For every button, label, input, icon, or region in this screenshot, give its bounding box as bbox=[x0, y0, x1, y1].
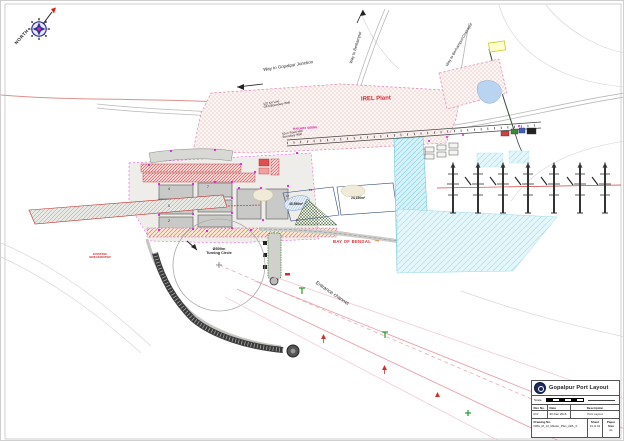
description-value: Port Layout bbox=[571, 411, 619, 418]
scale-label: Scale bbox=[534, 398, 542, 402]
parcel-area-label: 24,150m² bbox=[351, 197, 365, 200]
beacon-icon bbox=[299, 288, 471, 416]
rev-no-value: R-0 bbox=[532, 411, 548, 418]
parcel-area-label: 45,556m² bbox=[289, 203, 303, 206]
breakwater-label-2: BREAKWATER bbox=[85, 256, 115, 259]
paper-size-label: Paper Size bbox=[605, 420, 618, 428]
description-header: Description bbox=[571, 405, 619, 410]
substation-box bbox=[489, 41, 506, 52]
turning-circle-text: Turning Circle bbox=[194, 251, 244, 255]
port-logo bbox=[534, 382, 546, 394]
block-no: 2 bbox=[168, 220, 170, 224]
rev-no-header: Rev No. bbox=[532, 405, 548, 410]
scale-ticks bbox=[588, 399, 615, 401]
berth-loading-cluster bbox=[501, 128, 536, 136]
date-header: Date bbox=[548, 405, 571, 410]
block-no: 5 bbox=[168, 205, 170, 209]
parcel-patch bbox=[253, 189, 273, 201]
block-no: 4 bbox=[168, 188, 170, 192]
block-no: 7 bbox=[207, 186, 209, 190]
bay-of-bengal-label: BAY OF BENGAL bbox=[333, 240, 371, 244]
navigation-marks bbox=[299, 288, 471, 416]
parcel-no: 14 bbox=[309, 189, 312, 192]
scale-bar bbox=[546, 398, 584, 402]
drawing-no-value: DRG_M_13_Master_Plan_GPL_0 bbox=[534, 424, 578, 428]
existing-breakwater-label: EXISTING BREAKWATER bbox=[85, 253, 115, 259]
paper-size-value: A1 bbox=[609, 428, 613, 432]
port-layout-drawing: NORTH Way to Gopalpur Junction Way to Be… bbox=[0, 0, 624, 441]
parcel-no: 17 bbox=[286, 195, 289, 198]
date-value: 30 Dec 2016 bbox=[548, 411, 571, 418]
harbour-basin-water bbox=[397, 209, 557, 273]
irel-plant-label: IREL Plant bbox=[361, 95, 391, 102]
turning-circle-label: Ø500m Turning Circle bbox=[194, 247, 244, 255]
transmission-line bbox=[437, 163, 621, 213]
drawing-title: Gopalpur Port Layout bbox=[549, 385, 609, 391]
north-arrow-icon bbox=[28, 8, 56, 40]
sheet-value: 01 of 01 bbox=[590, 424, 600, 428]
title-block: Gopalpur Port Layout Scale Rev No. Date … bbox=[531, 380, 620, 438]
drawing-linework bbox=[1, 1, 624, 441]
